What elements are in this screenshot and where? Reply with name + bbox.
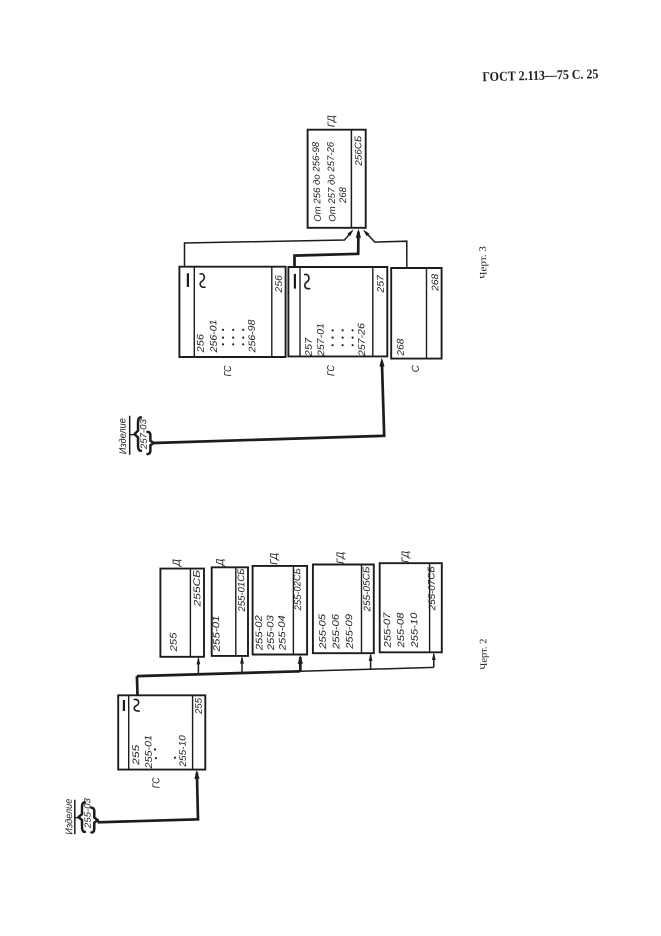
svg-text:256СБ: 256СБ: [353, 136, 365, 167]
svg-text:ГД: ГД: [335, 552, 346, 564]
svg-text:255-01: 255-01: [211, 615, 223, 652]
svg-text:257: 257: [375, 274, 386, 294]
svg-text:255-07: 255-07: [382, 612, 394, 649]
svg-text:Изделие: Изделие: [117, 418, 129, 455]
svg-text:ГС: ГС: [223, 365, 234, 377]
svg-text:257-01: 257-01: [315, 323, 327, 357]
svg-text:257-03: 257-03: [138, 419, 149, 450]
svg-text:257-26: 257-26: [356, 322, 368, 357]
svg-text:255-05: 255-05: [317, 613, 329, 650]
svg-text:255-08: 255-08: [395, 612, 407, 649]
svg-text:255-07СБ: 255-07СБ: [426, 566, 438, 611]
svg-text:255-10: 255-10: [177, 734, 189, 768]
svg-text:От 257 до 257-26: От 257 до 257-26: [325, 141, 338, 222]
svg-text:256: 256: [195, 333, 207, 354]
svg-text:Д: Д: [171, 559, 182, 567]
svg-text:255СБ: 255СБ: [192, 570, 204, 608]
svg-text:От 256 до 256-98: От 256 до 256-98: [311, 141, 324, 222]
svg-text:ГД: ГД: [269, 553, 280, 565]
svg-text:ГД: ГД: [400, 551, 411, 563]
svg-text:ГД: ГД: [326, 115, 337, 127]
svg-text:255-01СБ: 255-01СБ: [236, 568, 248, 612]
svg-text:255-03: 255-03: [82, 798, 93, 829]
svg-text:257: 257: [303, 337, 315, 358]
svg-text:С: С: [411, 364, 422, 372]
svg-text:Черт. 3: Черт. 3: [478, 246, 490, 279]
svg-text:255: 255: [131, 744, 143, 766]
svg-text:255-01: 255-01: [143, 735, 155, 770]
svg-text:ГС: ГС: [151, 777, 162, 789]
svg-text:256-01: 256-01: [208, 319, 220, 353]
svg-text:Д: Д: [215, 558, 226, 566]
svg-text:256: 256: [274, 274, 285, 294]
svg-text:255-10: 255-10: [409, 612, 421, 649]
svg-text:268: 268: [430, 273, 441, 292]
svg-text:255: 255: [194, 697, 205, 715]
svg-text:255-02СБ: 255-02СБ: [292, 568, 304, 611]
svg-text:Черт. 2: Черт. 2: [478, 638, 490, 669]
svg-text:Изделие: Изделие: [64, 798, 76, 835]
svg-text:255-02: 255-02: [254, 614, 266, 651]
svg-text:255-04: 255-04: [277, 615, 289, 651]
svg-text:ГС: ГС: [326, 364, 337, 376]
svg-text:256-98: 256-98: [247, 319, 259, 354]
svg-text:255-03: 255-03: [265, 614, 277, 651]
svg-text:255-09: 255-09: [344, 613, 356, 650]
svg-text:255-06: 255-06: [331, 613, 343, 650]
svg-text:255-05СБ: 255-05СБ: [361, 566, 373, 612]
svg-text:268: 268: [395, 338, 406, 357]
svg-text:268: 268: [338, 186, 349, 204]
svg-text:255: 255: [168, 631, 180, 652]
svg-text:ГОСТ 2.113—75 С. 25: ГОСТ 2.113—75 С. 25: [482, 66, 599, 84]
